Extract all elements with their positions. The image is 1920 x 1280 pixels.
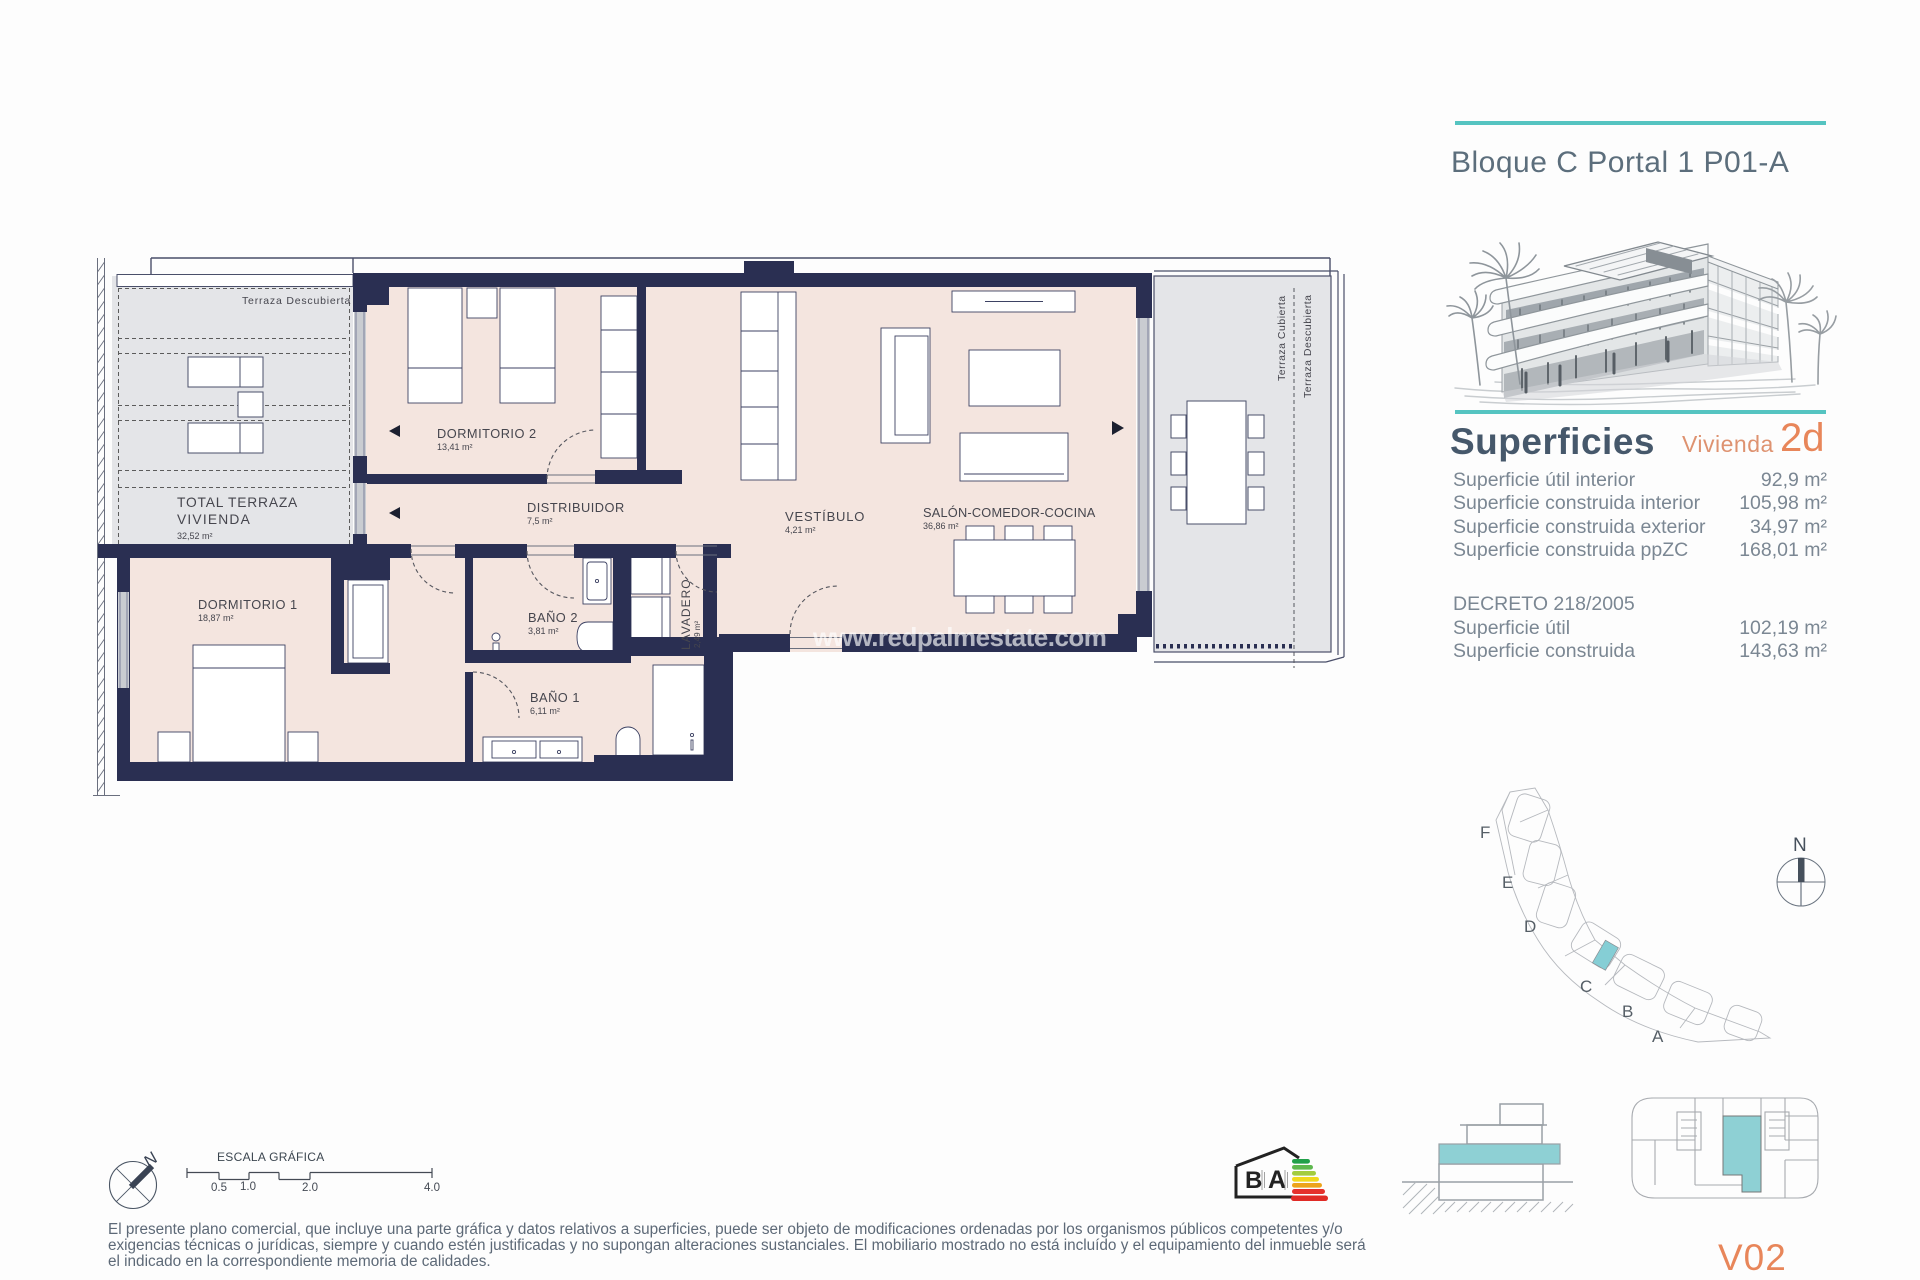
svg-text:VESTÍBULO: VESTÍBULO (785, 509, 865, 524)
svg-text:36,86 m²: 36,86 m² (923, 521, 959, 531)
svg-text:LAVADERO: LAVADERO (679, 578, 693, 650)
svg-text:C: C (1580, 977, 1592, 996)
svg-text:DISTRIBUIDOR: DISTRIBUIDOR (527, 500, 625, 515)
svg-text:BAÑO 1: BAÑO 1 (530, 690, 580, 705)
svg-text:A: A (1268, 1166, 1286, 1194)
svg-text:2,49 m²: 2,49 m² (693, 621, 702, 648)
svg-text:6,11 m²: 6,11 m² (530, 706, 560, 716)
svg-text:F: F (1480, 823, 1490, 842)
svg-text:DORMITORIO 2: DORMITORIO 2 (437, 426, 537, 441)
svg-text:A: A (1652, 1027, 1664, 1046)
svg-text:2.0: 2.0 (302, 1182, 318, 1194)
svg-text:18,87 m²: 18,87 m² (198, 613, 234, 623)
svg-text:Terraza Descubierta: Terraza Descubierta (1302, 295, 1314, 398)
svg-text:1.0: 1.0 (240, 1181, 256, 1193)
svg-text:N: N (140, 1148, 162, 1171)
svg-text:VIVIENDA: VIVIENDA (177, 512, 251, 527)
svg-text:13,41 m²: 13,41 m² (437, 442, 473, 452)
svg-text:N: N (1793, 835, 1807, 856)
svg-text:3,81 m²: 3,81 m² (528, 626, 559, 636)
svg-text:4,21 m²: 4,21 m² (785, 525, 816, 535)
svg-text:32,52 m²: 32,52 m² (177, 531, 213, 541)
svg-text:Terraza Cubierta: Terraza Cubierta (1276, 295, 1288, 381)
svg-text:4.0: 4.0 (424, 1182, 440, 1194)
svg-text:D: D (1524, 917, 1536, 936)
svg-text:E: E (1502, 873, 1513, 892)
svg-text:B: B (1622, 1002, 1633, 1021)
svg-text:7,5 m²: 7,5 m² (527, 516, 553, 526)
svg-text:BAÑO 2: BAÑO 2 (528, 610, 578, 625)
svg-text:TOTAL TERRAZA: TOTAL TERRAZA (177, 495, 298, 510)
svg-text:DORMITORIO 1: DORMITORIO 1 (198, 597, 298, 612)
svg-text:0.5: 0.5 (211, 1182, 227, 1194)
svg-text:B: B (1245, 1167, 1262, 1194)
svg-text:SALÓN-COMEDOR-COCINA: SALÓN-COMEDOR-COCINA (923, 505, 1096, 520)
svg-text:www.redpalmestate.com: www.redpalmestate.com (812, 622, 1106, 652)
svg-text:Terraza Descubierta: Terraza Descubierta (242, 295, 351, 307)
